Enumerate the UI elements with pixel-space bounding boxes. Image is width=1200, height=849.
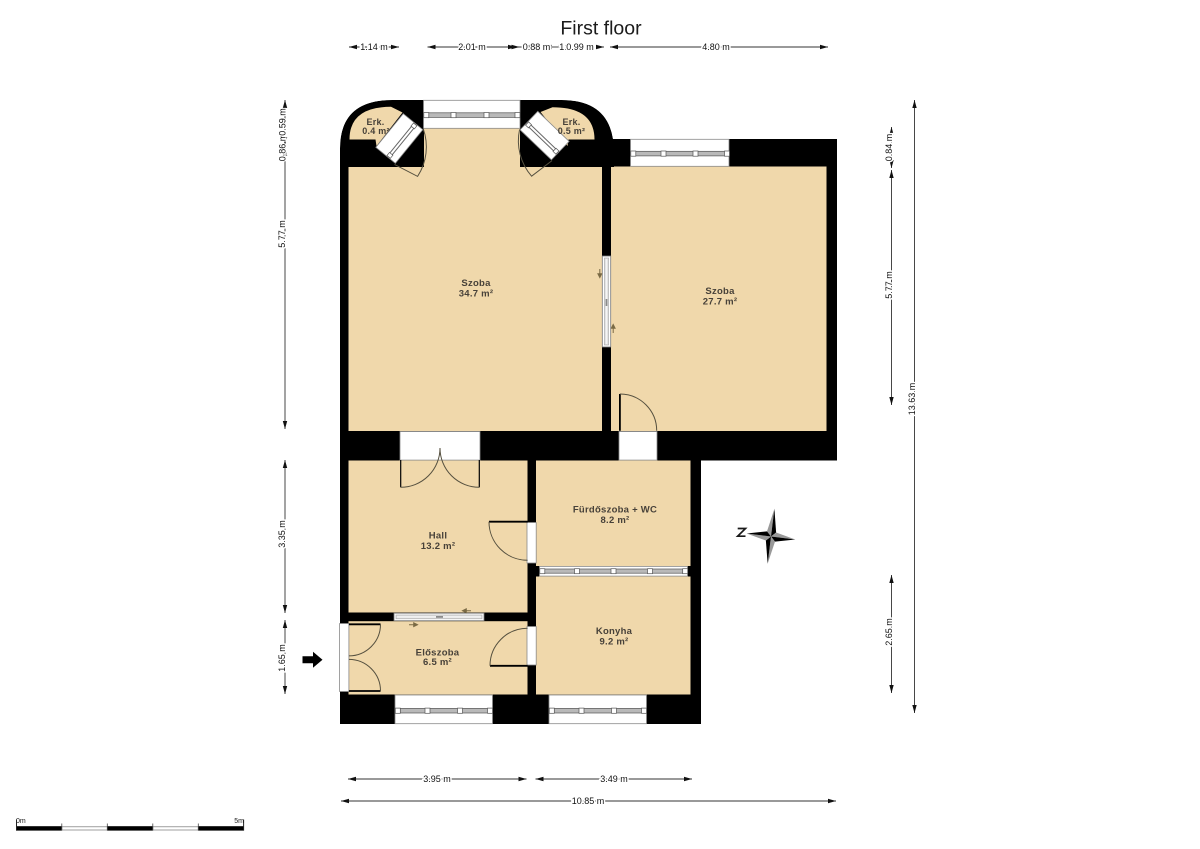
svg-text:1.65 m: 1.65 m — [277, 644, 287, 672]
svg-text:4.80 m: 4.80 m — [702, 42, 730, 52]
svg-text:9.2 m²: 9.2 m² — [600, 637, 629, 648]
svg-text:34.7 m²: 34.7 m² — [459, 289, 494, 300]
svg-text:Szoba: Szoba — [461, 278, 491, 289]
svg-text:2.65 m: 2.65 m — [884, 618, 894, 646]
svg-text:10.85 m: 10.85 m — [572, 796, 605, 806]
svg-text:3.49 m: 3.49 m — [600, 774, 628, 784]
svg-text:Fürdőszoba + WC: Fürdőszoba + WC — [573, 505, 657, 516]
svg-text:5m: 5m — [234, 818, 244, 825]
svg-text:Konyha: Konyha — [596, 626, 633, 637]
svg-text:27.7 m²: 27.7 m² — [703, 297, 738, 308]
svg-text:0.4 m²: 0.4 m² — [362, 126, 390, 136]
svg-text:8.2 m²: 8.2 m² — [601, 515, 630, 526]
svg-text:0.84 m: 0.84 m — [884, 134, 894, 162]
svg-text:13.2 m²: 13.2 m² — [421, 541, 456, 552]
svg-text:5.77 m: 5.77 m — [884, 271, 894, 299]
svg-text:0.99 m: 0.99 m — [566, 42, 594, 52]
svg-text:0.5 m²: 0.5 m² — [558, 126, 586, 136]
svg-text:0m: 0m — [16, 818, 26, 825]
svg-text:3.95 m: 3.95 m — [423, 774, 451, 784]
svg-text:0.88 m: 0.88 m — [523, 42, 551, 52]
svg-text:0.59 m: 0.59 m — [277, 108, 287, 136]
svg-text:3.35 m: 3.35 m — [277, 520, 287, 548]
svg-text:1.14 m: 1.14 m — [360, 42, 388, 52]
svg-text:Hall: Hall — [429, 531, 447, 542]
svg-text:2.01 m: 2.01 m — [458, 42, 486, 52]
svg-text:First floor: First floor — [560, 18, 642, 40]
svg-text:5.77 m: 5.77 m — [277, 220, 287, 248]
svg-text:6.5 m²: 6.5 m² — [423, 657, 452, 668]
svg-text:Szoba: Szoba — [705, 286, 735, 297]
svg-text:0.86 m: 0.86 m — [277, 134, 287, 162]
svg-text:13.63 m: 13.63 m — [907, 383, 917, 416]
